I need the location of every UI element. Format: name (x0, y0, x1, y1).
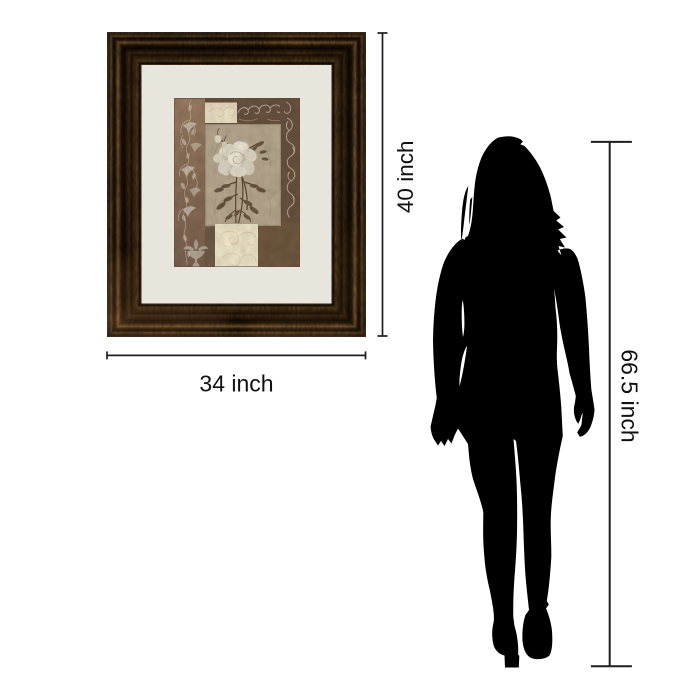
svg-text:40 inch: 40 inch (393, 141, 418, 214)
svg-text:66.5 inch: 66.5 inch (617, 349, 643, 442)
svg-text:34 inch: 34 inch (199, 371, 273, 397)
